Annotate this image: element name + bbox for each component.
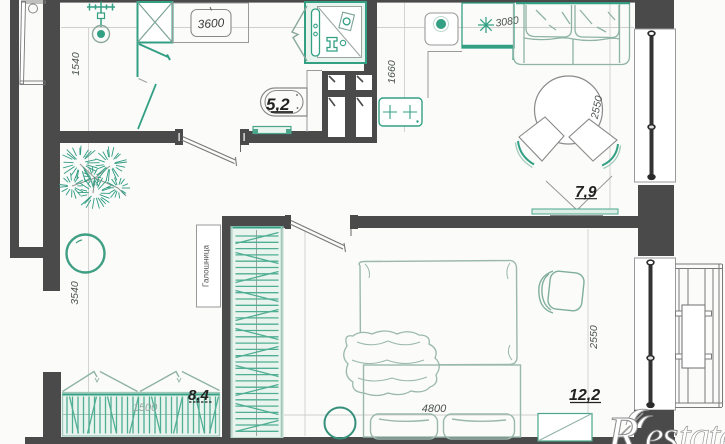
svg-text:12,2: 12,2 [569, 387, 600, 404]
svg-text:1540: 1540 [70, 52, 82, 76]
svg-text:R: R [606, 407, 639, 444]
svg-text:Галошница: Галошница [202, 245, 211, 287]
svg-text:3600: 3600 [197, 16, 225, 32]
svg-text:es: es [645, 414, 678, 444]
svg-text:1500: 1500 [133, 402, 158, 414]
svg-text:1660: 1660 [386, 60, 398, 84]
svg-text:tate: tate [679, 414, 725, 444]
svg-text:4800: 4800 [422, 403, 447, 415]
svg-text:2550: 2550 [588, 325, 600, 350]
svg-text:3540: 3540 [69, 281, 81, 305]
